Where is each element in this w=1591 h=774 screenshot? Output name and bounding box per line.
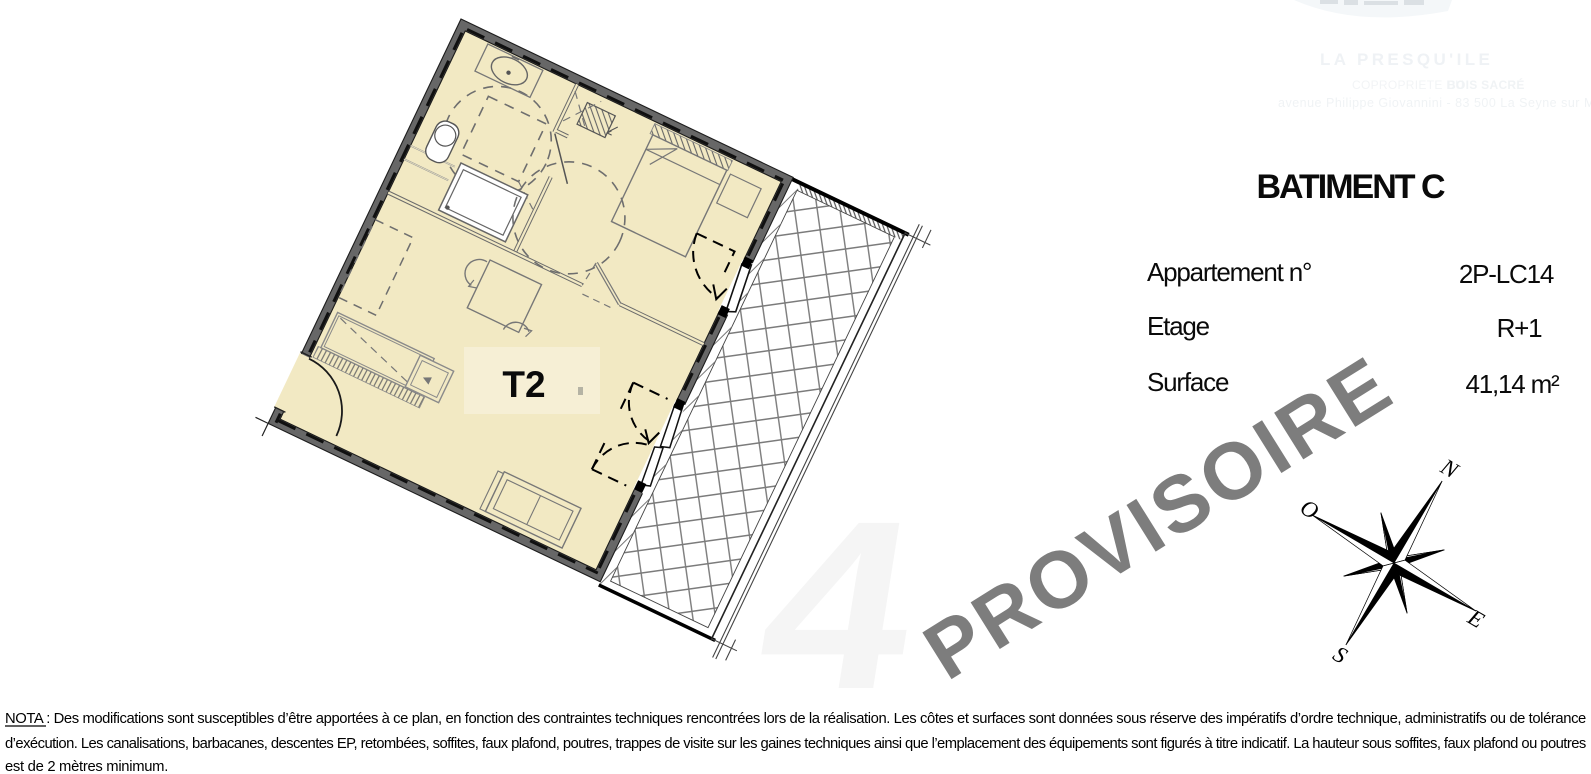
svg-text:2P-LC14: 2P-LC14 [1459,259,1554,289]
svg-text:NOTA : Des modifications sont: NOTA : Des modifications sont susceptibl… [5,711,1586,727]
svg-text:Etage: Etage [1147,311,1210,341]
svg-text:LA PRESQU'ILE: LA PRESQU'ILE [1320,50,1493,69]
svg-text:BOIS SACRÉ: BOIS SACRÉ [1447,77,1525,92]
svg-text:T2: T2 [502,364,545,405]
svg-text:41,14 m²: 41,14 m² [1465,369,1560,399]
svg-text:Appartement n°: Appartement n° [1147,257,1311,287]
svg-text:Surface: Surface [1147,367,1229,397]
svg-text:R+1: R+1 [1497,313,1543,343]
svg-text:S: S [1329,641,1352,669]
svg-text:BATIMENT C: BATIMENT C [1256,168,1445,206]
svg-text:N: N [1436,453,1464,484]
svg-text:d’exécution. Les canalisations: d’exécution. Les canalisations, barbacan… [5,736,1586,752]
svg-text:E: E [1463,604,1489,633]
svg-text:avenue Philippe Giovannini - 8: avenue Philippe Giovannini - 83 500 La S… [1278,96,1591,110]
svg-text:est de 2 mètres minimum.: est de 2 mètres minimum. [5,759,168,774]
